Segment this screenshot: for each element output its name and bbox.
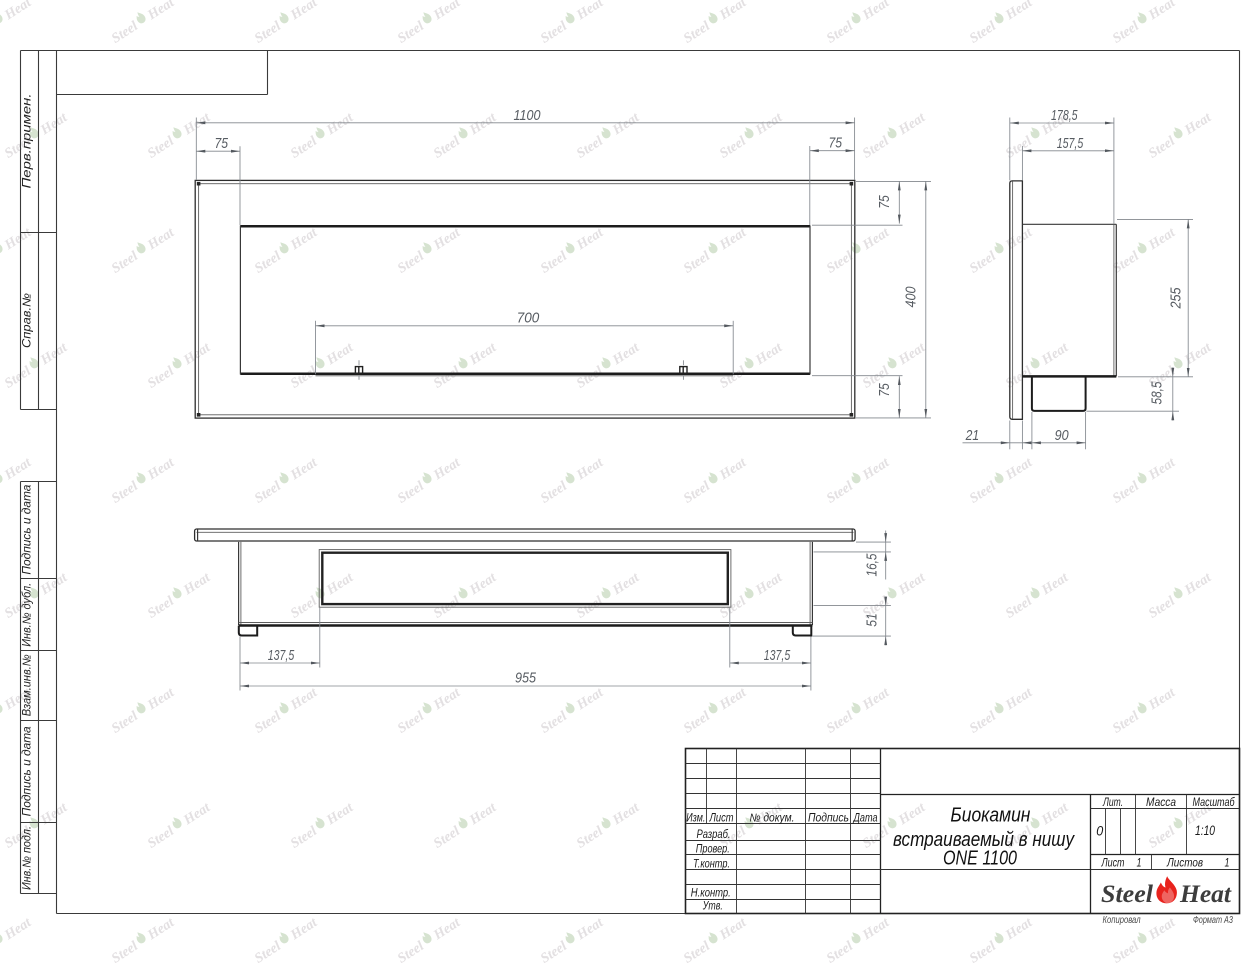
svg-text:137,5: 137,5	[268, 647, 295, 664]
svg-text:Формат А3: Формат А3	[1193, 914, 1233, 926]
svg-text:1100: 1100	[514, 107, 542, 124]
svg-text:Подпись и дата: Подпись и дата	[22, 726, 34, 816]
svg-text:Heat: Heat	[1179, 881, 1232, 908]
svg-text:1: 1	[1137, 857, 1142, 869]
svg-text:№ докум.: № докум.	[750, 812, 795, 824]
svg-text:Подпись и дата: Подпись и дата	[22, 485, 34, 575]
svg-text:Лист: Лист	[1101, 857, 1125, 869]
svg-text:Лист: Лист	[709, 812, 734, 824]
svg-text:Масса: Масса	[1146, 797, 1176, 809]
svg-text:16,5: 16,5	[864, 553, 881, 577]
svg-text:Инв.№ подл.: Инв.№ подл.	[22, 826, 34, 890]
svg-text:Справ.№: Справ.№	[22, 292, 34, 348]
svg-text:1:10: 1:10	[1195, 823, 1215, 838]
svg-text:Инв.№ дубл.: Инв.№ дубл.	[22, 583, 34, 647]
svg-text:Листов: Листов	[1166, 857, 1203, 869]
svg-text:700: 700	[517, 309, 540, 326]
svg-text:157,5: 157,5	[1057, 135, 1084, 152]
svg-text:400: 400	[902, 286, 919, 308]
svg-text:955: 955	[515, 670, 537, 687]
svg-text:75: 75	[828, 135, 842, 152]
svg-text:Копировал: Копировал	[1103, 914, 1141, 926]
svg-text:Подпись: Подпись	[808, 812, 849, 824]
svg-text:75: 75	[215, 135, 229, 152]
svg-text:75: 75	[876, 195, 893, 209]
svg-text:Разраб.: Разраб.	[697, 829, 731, 841]
svg-text:Дата: Дата	[852, 812, 878, 824]
svg-text:137,5: 137,5	[764, 647, 791, 664]
svg-text:Биокамин: Биокамин	[950, 804, 1030, 827]
svg-text:51: 51	[864, 613, 881, 627]
svg-text:178,5: 178,5	[1051, 107, 1078, 124]
svg-text:1: 1	[1225, 857, 1230, 869]
svg-text:Steel: Steel	[1101, 881, 1153, 908]
svg-text:Перв.примен.: Перв.примен.	[22, 94, 34, 189]
svg-text:58,5: 58,5	[1149, 381, 1166, 405]
svg-text:255: 255	[1168, 287, 1185, 309]
svg-text:ONE 1100: ONE 1100	[943, 846, 1017, 869]
svg-text:Н.контр.: Н.контр.	[691, 888, 731, 900]
svg-text:Провер.: Провер.	[696, 843, 730, 855]
svg-text:90: 90	[1055, 427, 1070, 444]
svg-text:Масштаб: Масштаб	[1193, 797, 1235, 809]
svg-text:Утв.: Утв.	[702, 900, 723, 912]
svg-text:Взам.инв.№: Взам.инв.№	[22, 654, 34, 717]
svg-text:0: 0	[1096, 824, 1103, 839]
svg-text:Лит.: Лит.	[1102, 797, 1123, 809]
svg-text:Т.контр.: Т.контр.	[693, 858, 730, 870]
svg-text:21: 21	[965, 427, 979, 444]
svg-text:75: 75	[876, 383, 893, 397]
svg-text:Изм.: Изм.	[686, 812, 705, 824]
